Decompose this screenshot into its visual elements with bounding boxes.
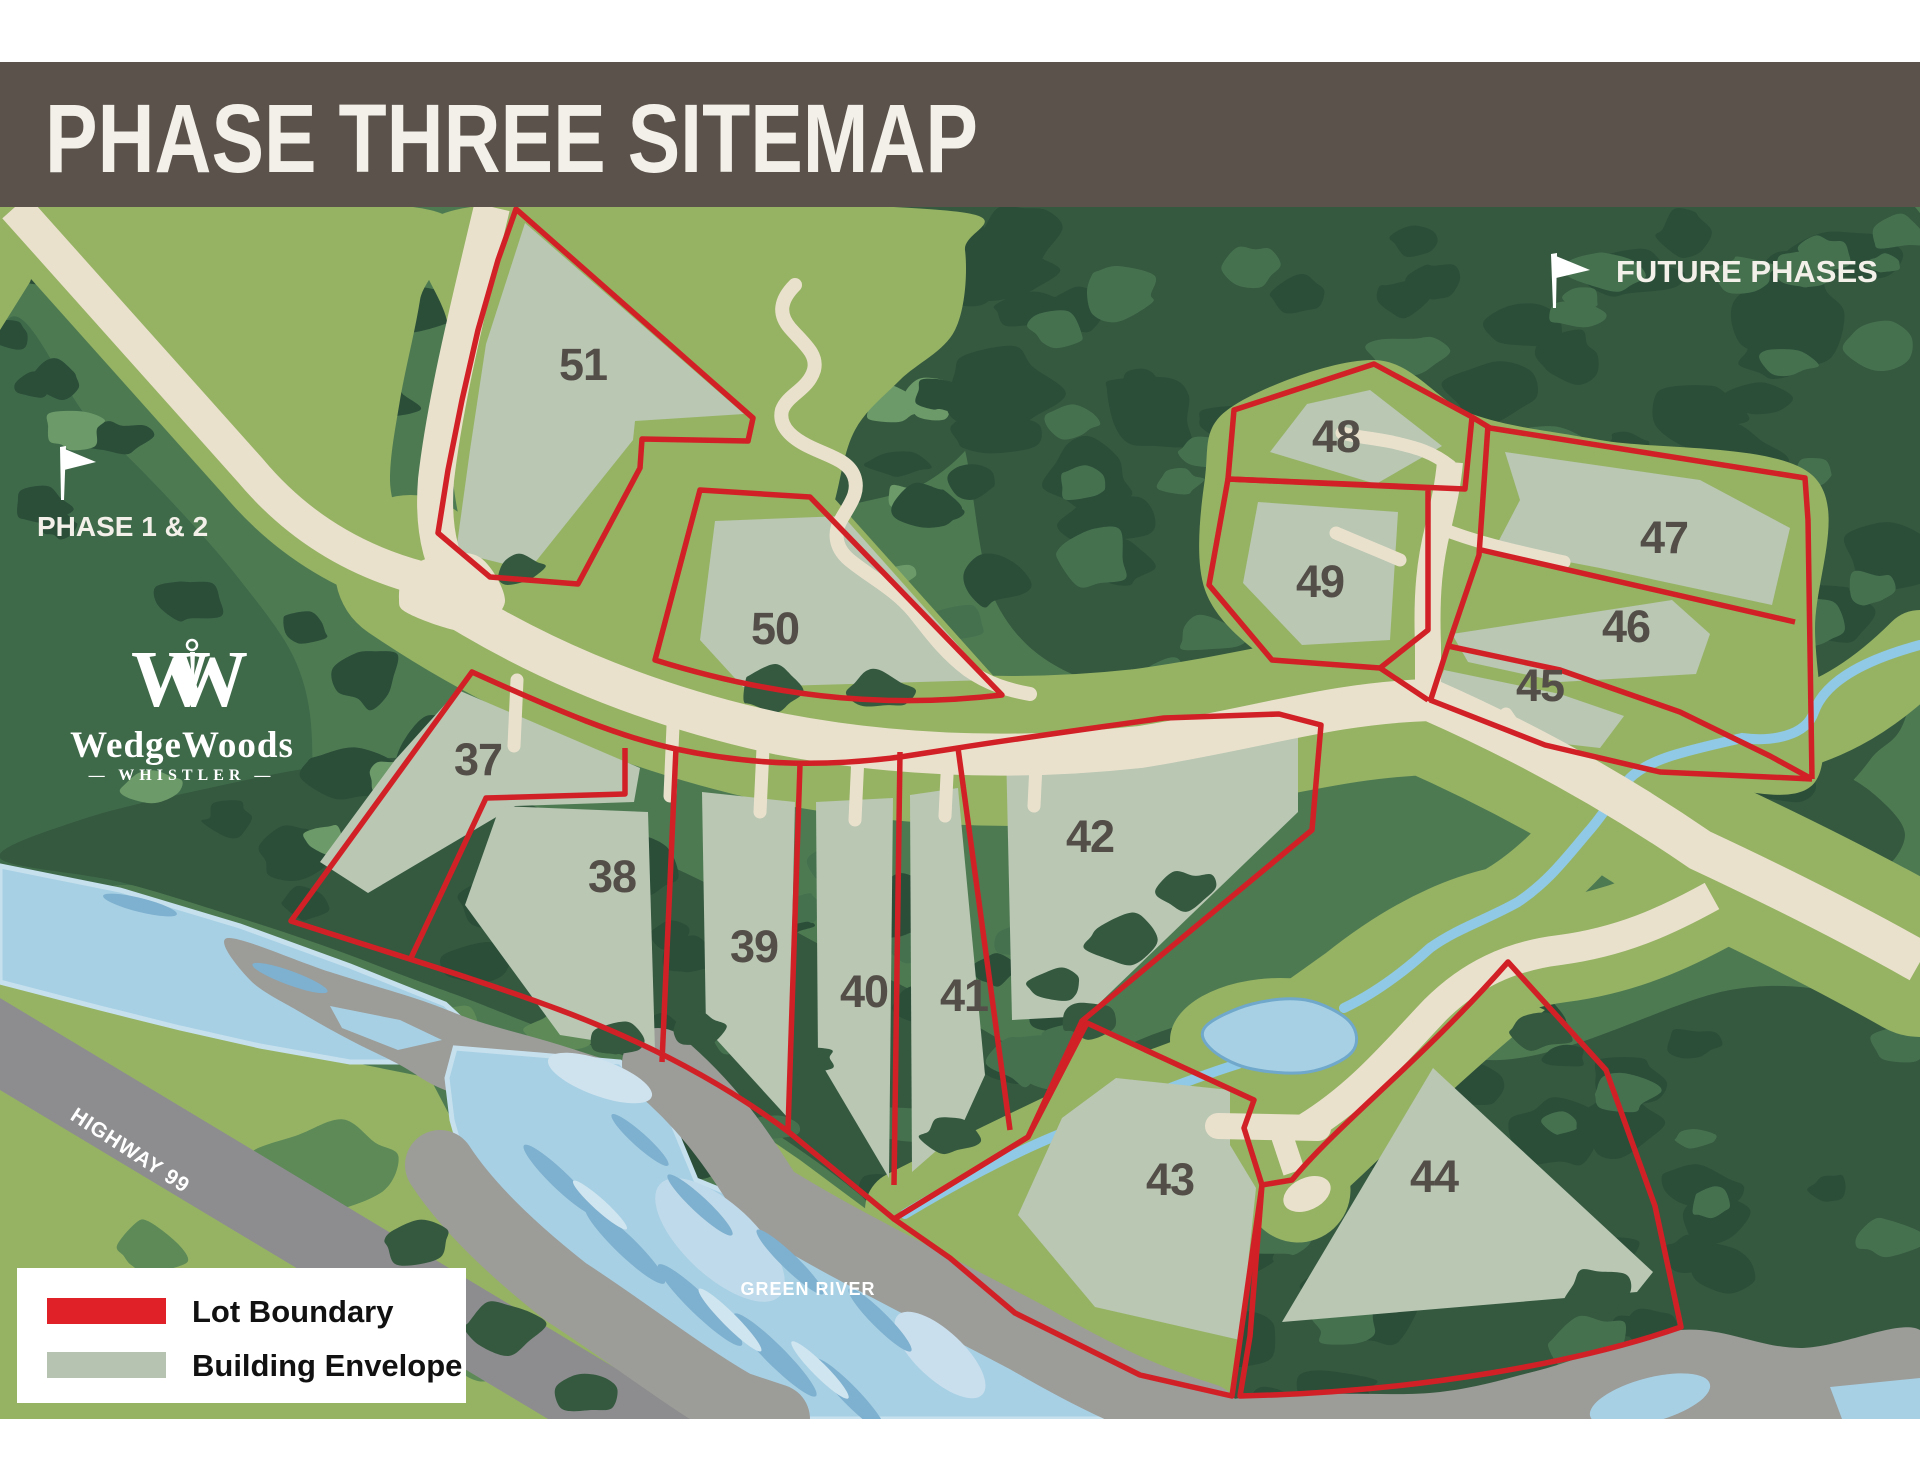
svg-text:48: 48 (1312, 411, 1360, 462)
svg-text:PHASE THREE SITEMAP: PHASE THREE SITEMAP (45, 84, 978, 193)
svg-text:44: 44 (1410, 1151, 1459, 1202)
svg-text:WedgeWoods: WedgeWoods (70, 725, 294, 766)
svg-text:37: 37 (454, 734, 502, 785)
svg-text:51: 51 (559, 339, 607, 390)
svg-text:38: 38 (588, 851, 636, 902)
svg-text:45: 45 (1516, 660, 1564, 711)
svg-text:Building Envelope: Building Envelope (192, 1348, 462, 1383)
svg-text:39: 39 (730, 921, 778, 972)
svg-text:43: 43 (1146, 1154, 1194, 1205)
svg-text:42: 42 (1066, 811, 1114, 862)
svg-text:47: 47 (1640, 512, 1688, 563)
svg-text:49: 49 (1296, 556, 1344, 607)
svg-text:Lot Boundary: Lot Boundary (192, 1294, 394, 1329)
svg-text:50: 50 (751, 603, 799, 654)
svg-text:W: W (168, 636, 248, 724)
svg-text:41: 41 (940, 970, 988, 1021)
svg-text:PHASE 1 & 2: PHASE 1 & 2 (37, 511, 208, 542)
svg-text:FUTURE PHASES: FUTURE PHASES (1616, 254, 1878, 289)
svg-text:46: 46 (1602, 601, 1650, 652)
svg-text:GREEN RIVER: GREEN RIVER (740, 1279, 875, 1299)
svg-text:40: 40 (840, 966, 888, 1017)
svg-text:— WHISTLER —: — WHISTLER — (88, 767, 276, 784)
